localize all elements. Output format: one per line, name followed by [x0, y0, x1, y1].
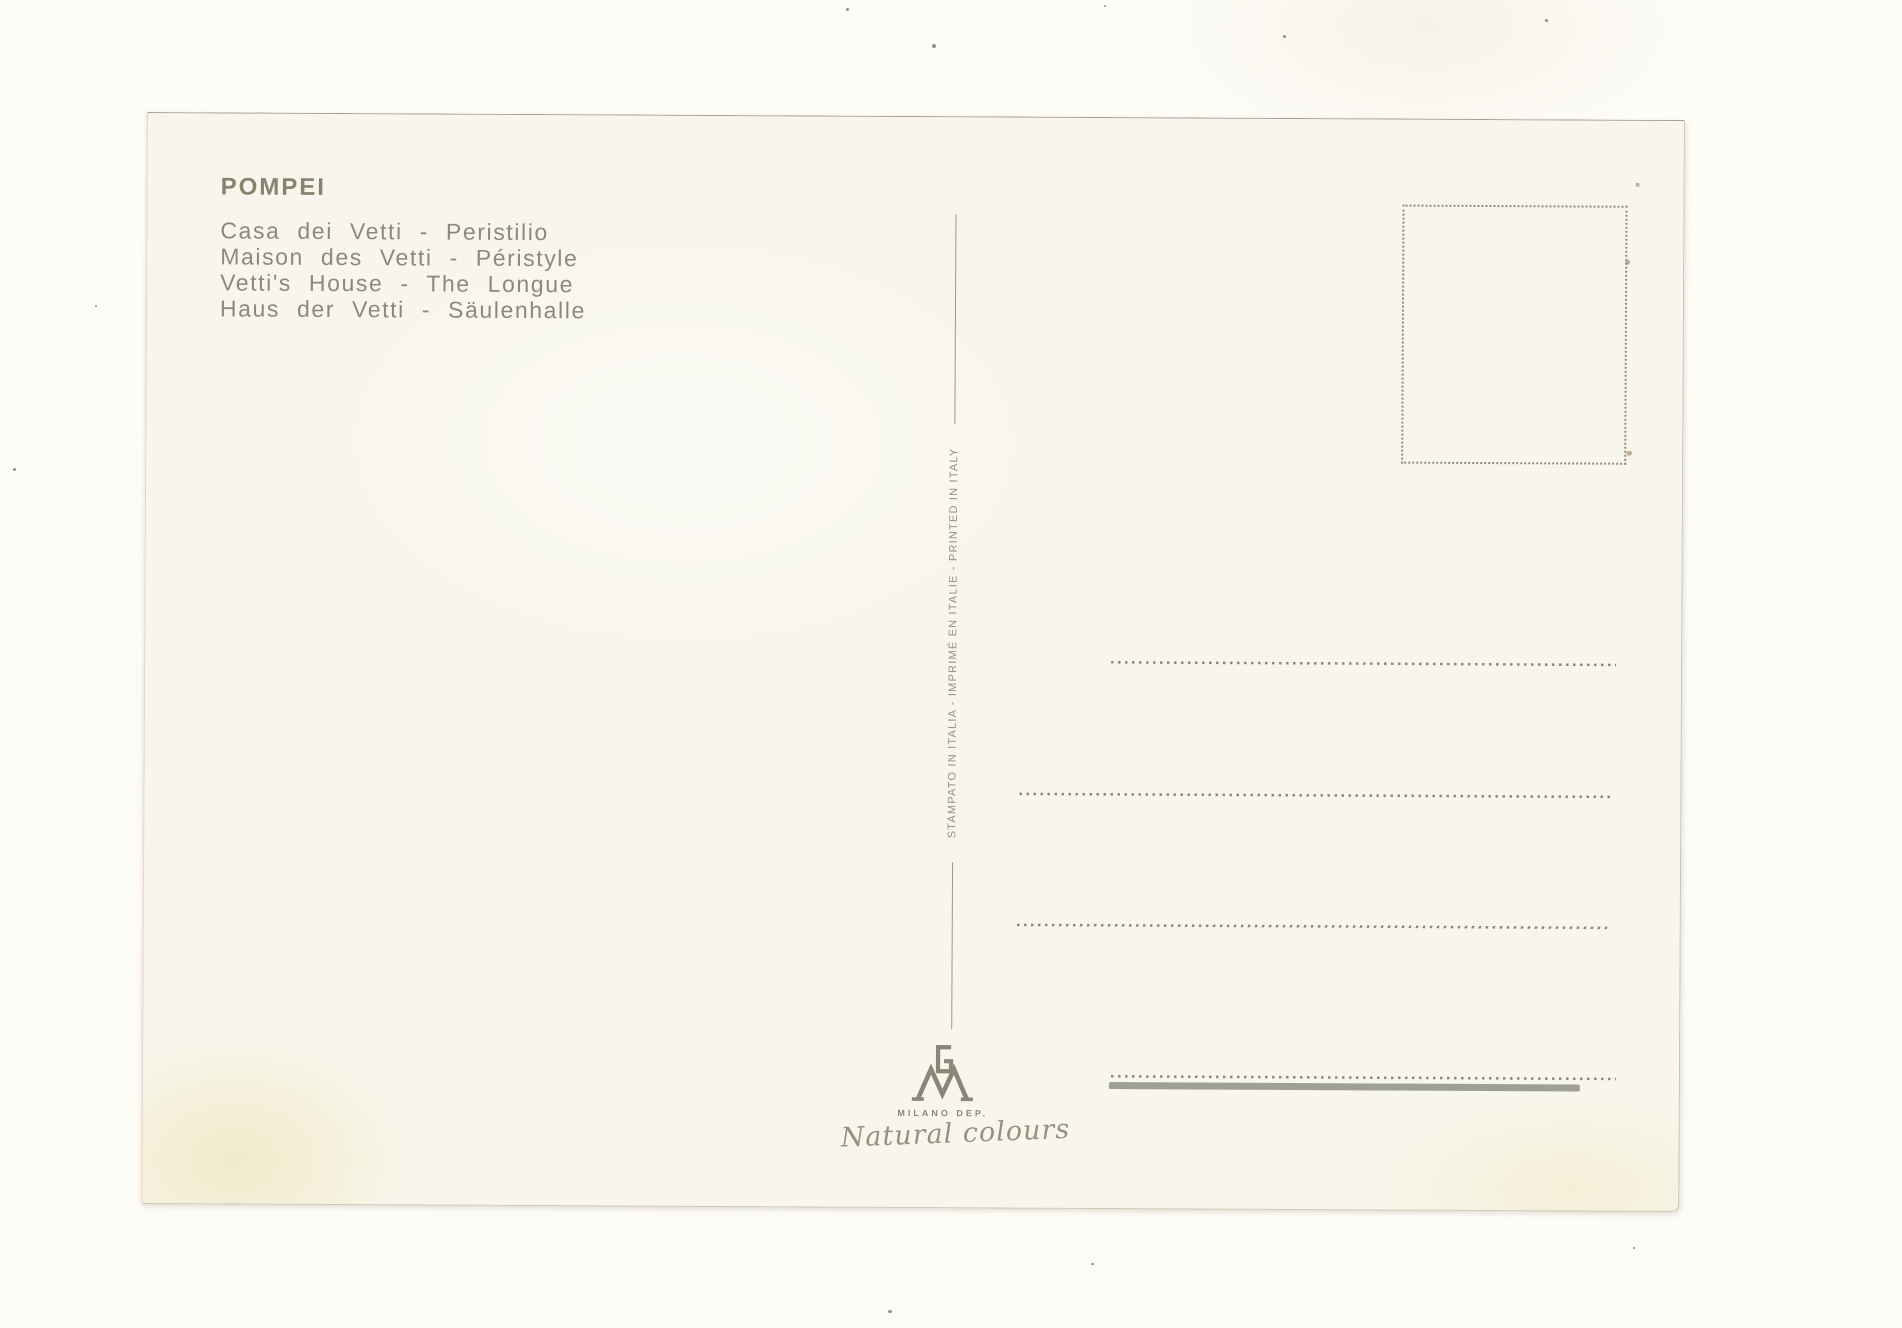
caption-german: Haus der Vetti - Säulenhalle — [220, 295, 586, 323]
publisher-block: MILANO DEP. Natural colours — [843, 1042, 1043, 1119]
divider-line-bottom — [951, 862, 953, 1029]
address-line-3 — [1017, 924, 1612, 930]
stamp-box — [1401, 205, 1627, 465]
dust-speck — [932, 44, 936, 48]
stain-speck — [1625, 260, 1630, 265]
gm-monogram-icon — [908, 1042, 978, 1106]
printed-in-italy-imprint: STAMPATO IN ITALIA - IMPRIMÉ EN ITALIE -… — [938, 425, 968, 861]
dust-speck — [1283, 35, 1286, 38]
stain-speck — [1636, 183, 1640, 187]
dust-speck — [1104, 5, 1106, 7]
address-baseline — [1109, 1082, 1580, 1091]
dust-speck — [846, 8, 849, 11]
caption-block: POMPEI Casa dei Vetti - Peristilio Maiso… — [220, 173, 587, 323]
postcard: POMPEI Casa dei Vetti - Peristilio Maiso… — [141, 112, 1685, 1212]
address-line-2 — [1019, 793, 1610, 799]
dust-speck — [888, 1310, 892, 1313]
stain-speck — [1626, 451, 1632, 456]
address-line-4 — [1111, 1075, 1616, 1081]
dust-speck — [1091, 1263, 1094, 1265]
postcard-title: POMPEI — [221, 173, 587, 203]
caption-french: Maison des Vetti - Péristyle — [220, 243, 586, 271]
address-line-1 — [1111, 661, 1616, 667]
dust-speck — [95, 305, 97, 307]
caption-english: Vetti's House - The Longue — [220, 269, 586, 297]
caption-italian: Casa dei Vetti - Peristilio — [220, 217, 586, 245]
dust-speck — [1633, 1247, 1635, 1249]
scanner-background: POMPEI Casa dei Vetti - Peristilio Maiso… — [0, 0, 1902, 1328]
dust-speck — [13, 468, 16, 471]
publisher-tagline: Natural colours — [840, 1114, 1071, 1154]
divider-line-top — [954, 214, 956, 424]
dust-speck — [1545, 19, 1548, 22]
